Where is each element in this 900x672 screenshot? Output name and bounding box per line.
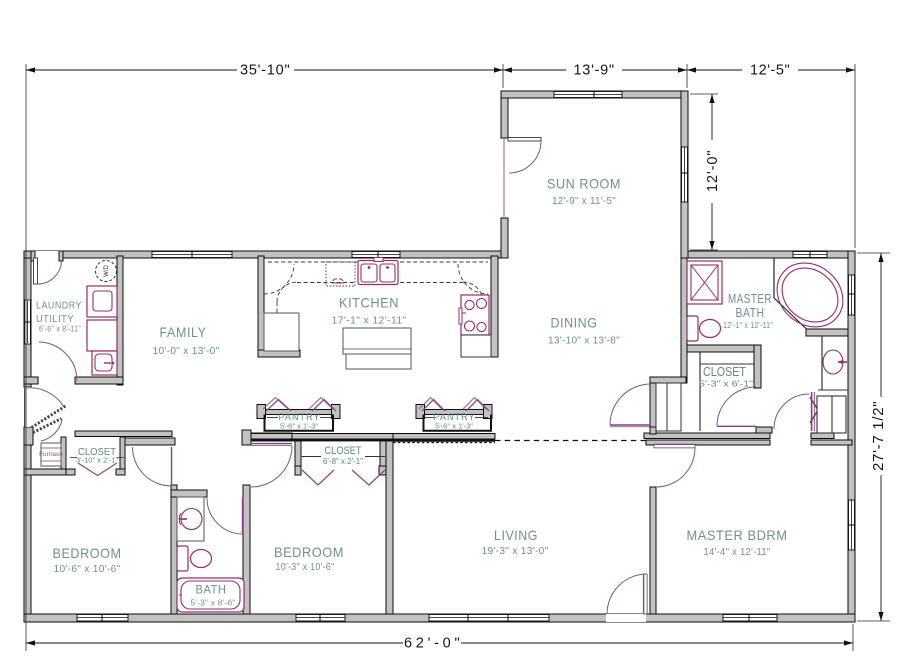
svg-text:27'-7 1/2": 27'-7 1/2" bbox=[870, 401, 887, 471]
svg-text:12'-5": 12'-5" bbox=[750, 63, 790, 79]
svg-text:5'-3" x 8'-6": 5'-3" x 8'-6" bbox=[191, 598, 236, 608]
svg-text:35'-10": 35'-10" bbox=[240, 63, 290, 79]
svg-text:UTILITY: UTILITY bbox=[36, 313, 74, 325]
svg-text:10'-0" x 13'-0": 10'-0" x 13'-0" bbox=[153, 345, 220, 357]
svg-text:W/D: W/D bbox=[104, 265, 110, 277]
svg-text:DINING: DINING bbox=[551, 315, 598, 331]
svg-text:6'-8" x 2'-1": 6'-8" x 2'-1" bbox=[323, 457, 363, 466]
svg-text:5'-6" x 1'-3": 5'-6" x 1'-3" bbox=[435, 422, 473, 431]
svg-text:Furnace: Furnace bbox=[39, 451, 63, 458]
svg-text:19'-3" x 13'-0": 19'-3" x 13'-0" bbox=[482, 545, 549, 557]
svg-text:LAUNDRY: LAUNDRY bbox=[36, 300, 82, 312]
svg-text:12'-1" x 12'-11": 12'-1" x 12'-11" bbox=[723, 320, 773, 330]
svg-text:LIVING: LIVING bbox=[494, 527, 538, 543]
svg-text:10'-6" x 10'-6": 10'-6" x 10'-6" bbox=[54, 563, 121, 575]
svg-text:BATH: BATH bbox=[196, 583, 227, 597]
svg-text:5'-3" x 6'-1": 5'-3" x 6'-1" bbox=[699, 379, 753, 389]
svg-text:BEDROOM: BEDROOM bbox=[53, 545, 122, 561]
svg-text:KITCHEN: KITCHEN bbox=[339, 295, 399, 311]
svg-text:PANTRY: PANTRY bbox=[279, 412, 320, 422]
svg-text:12'-0": 12'-0" bbox=[705, 150, 721, 192]
svg-text:12'-9" x 11'-5": 12'-9" x 11'-5" bbox=[552, 195, 616, 207]
svg-text:10'-3" x 10'-6": 10'-3" x 10'-6" bbox=[276, 561, 335, 573]
svg-text:CLOSET: CLOSET bbox=[325, 445, 362, 457]
svg-text:PANTRY: PANTRY bbox=[434, 412, 475, 422]
svg-text:CLOSET: CLOSET bbox=[703, 365, 746, 379]
svg-text:17'-1" x 12'-11": 17'-1" x 12'-11" bbox=[332, 315, 407, 327]
svg-text:MASTER BDRM: MASTER BDRM bbox=[687, 527, 788, 543]
svg-text:13'-10" x 13'-8": 13'-10" x 13'-8" bbox=[548, 335, 620, 347]
svg-text:13'-9": 13'-9" bbox=[574, 63, 615, 79]
svg-text:BEDROOM: BEDROOM bbox=[274, 544, 344, 560]
svg-text:3'-10" x 2'-1": 3'-10" x 2'-1" bbox=[76, 456, 118, 465]
svg-text:SUN ROOM: SUN ROOM bbox=[547, 176, 621, 192]
svg-text:MASTER: MASTER bbox=[728, 291, 772, 306]
svg-text:BATH: BATH bbox=[736, 305, 765, 320]
svg-text:14'-4" x 12'-11": 14'-4" x 12'-11" bbox=[704, 546, 771, 558]
svg-text:6'-6" x 8'-11": 6'-6" x 8'-11" bbox=[39, 325, 81, 334]
svg-text:5'-6" x 1'-3": 5'-6" x 1'-3" bbox=[280, 422, 318, 431]
svg-text:FAMILY: FAMILY bbox=[160, 324, 207, 340]
